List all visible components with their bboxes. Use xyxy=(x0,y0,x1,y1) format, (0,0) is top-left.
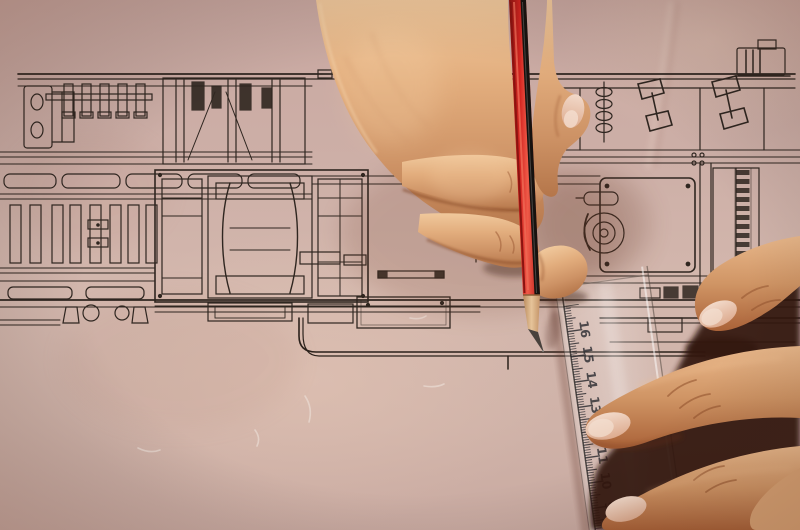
drafting-scene: 1615141312111098 xyxy=(0,0,800,530)
vignette-overlay xyxy=(0,0,800,530)
photo-canvas: 1615141312111098 xyxy=(0,0,800,530)
